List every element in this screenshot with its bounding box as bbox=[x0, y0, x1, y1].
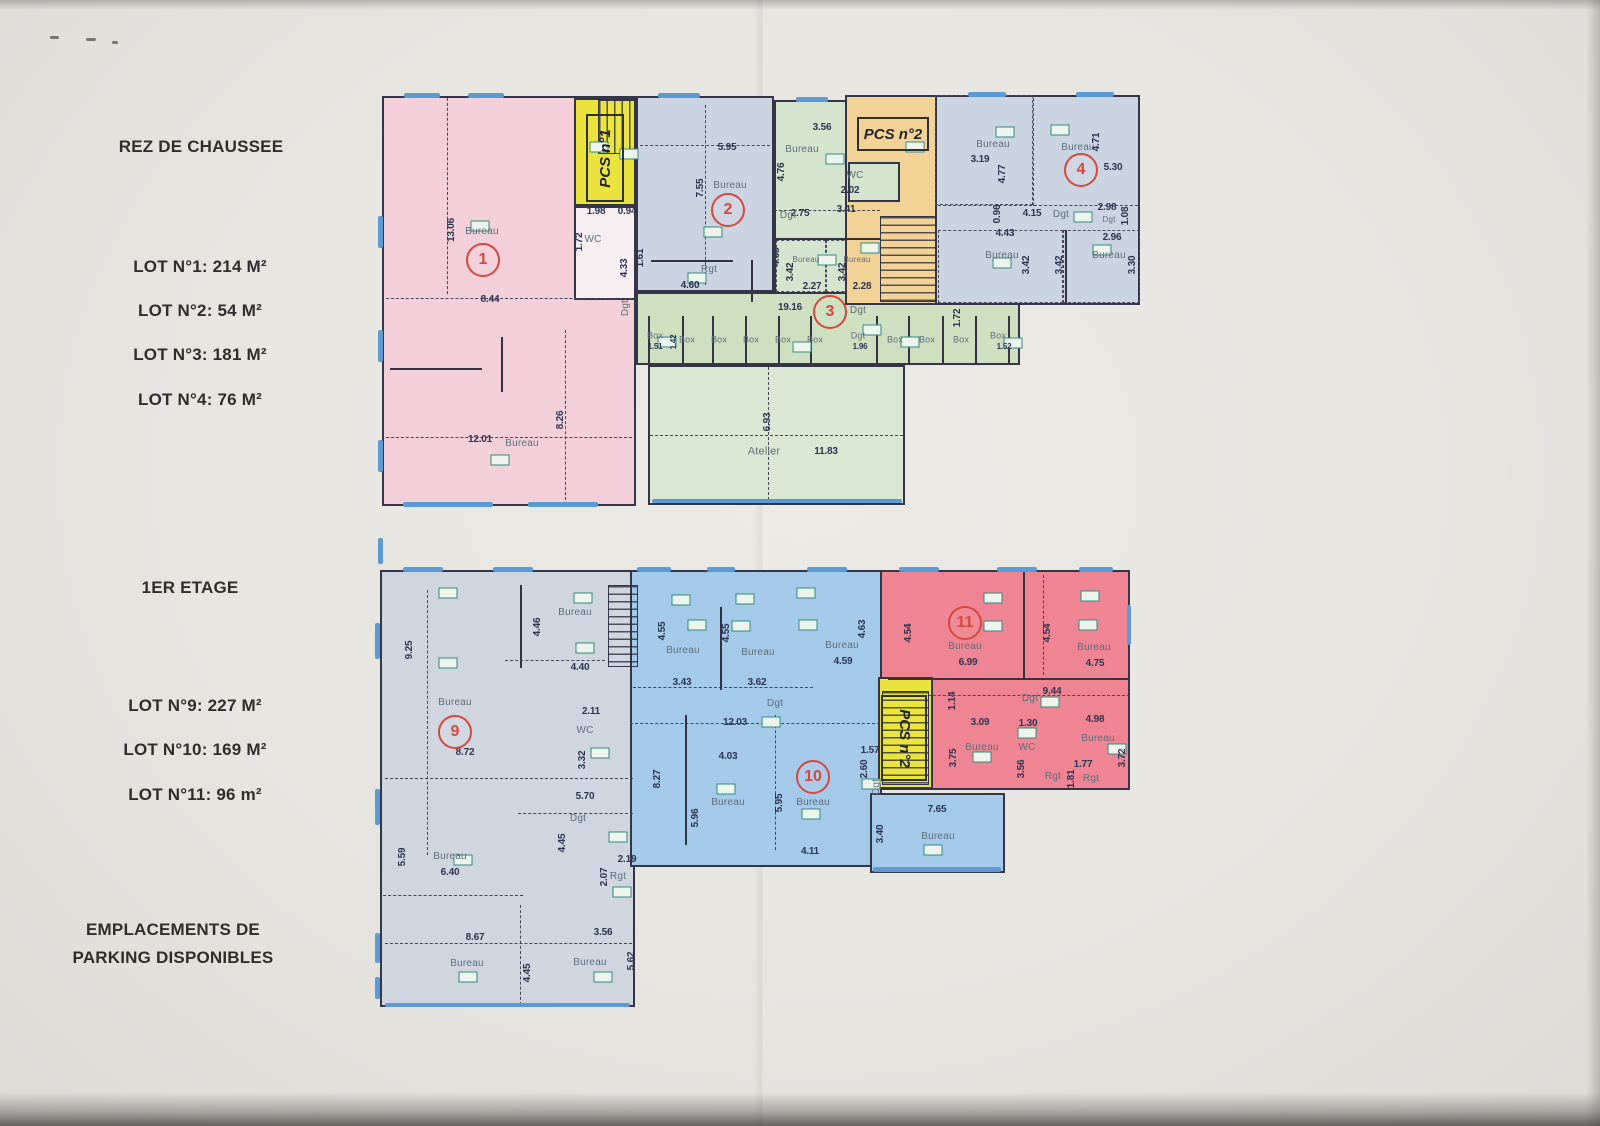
window-mark bbox=[404, 93, 440, 98]
lot-number-circle: 4 bbox=[1064, 153, 1098, 187]
dimension-label: 6.93 bbox=[763, 413, 773, 432]
window-mark bbox=[378, 330, 383, 362]
room-label: Bureau bbox=[713, 181, 746, 191]
room-label: Bureau bbox=[985, 251, 1018, 261]
window-mark bbox=[658, 93, 700, 98]
room-tag-badge bbox=[704, 227, 723, 238]
staircase bbox=[880, 216, 937, 302]
dimension-label: 1.72 bbox=[953, 309, 963, 328]
room-tag-badge bbox=[984, 621, 1003, 632]
dimension-label: 4.75 bbox=[1086, 659, 1105, 669]
lot10-area bbox=[630, 570, 882, 867]
dimension-label: 8.27 bbox=[653, 770, 663, 789]
room-tag-badge bbox=[736, 594, 755, 605]
wall-line bbox=[888, 678, 1130, 680]
first-floor-plan: PCS n°29.254.46Bureau4.40Bureau8.722.11W… bbox=[375, 565, 1130, 1012]
room-label: Rgt bbox=[610, 872, 626, 882]
wc-room bbox=[848, 162, 900, 202]
dimension-label: 1.81 bbox=[1067, 770, 1077, 789]
partition-line bbox=[383, 895, 523, 896]
room-label: WC bbox=[846, 171, 863, 181]
lot-10-label: LOT N°10: 169 M² bbox=[65, 740, 325, 760]
room-label: Dgt bbox=[767, 699, 783, 709]
room-tag-badge bbox=[1079, 620, 1098, 631]
room-label: Dgt bbox=[1102, 216, 1115, 224]
room-label: Bureau bbox=[433, 852, 466, 862]
dimension-label: 12.03 bbox=[723, 718, 747, 728]
dimension-label: 4.15 bbox=[1023, 209, 1042, 219]
dimension-label: 3.75 bbox=[949, 749, 959, 768]
dimension-label: 2.98 bbox=[1098, 203, 1117, 213]
window-mark bbox=[378, 216, 383, 248]
room-tag-badge bbox=[1041, 697, 1060, 708]
dimension-label: 4.46 bbox=[533, 618, 543, 637]
window-mark bbox=[378, 538, 383, 564]
room-tag-badge bbox=[672, 595, 691, 606]
window-mark bbox=[403, 567, 443, 572]
room-tag-badge bbox=[818, 255, 837, 266]
dimension-label: 19.16 bbox=[778, 303, 802, 313]
room-label: Dgt bbox=[851, 332, 866, 341]
room-label: Dgt bbox=[1053, 210, 1069, 220]
dimension-label: 4.71 bbox=[1092, 133, 1102, 152]
room-label: Box bbox=[807, 336, 823, 345]
room-tag-badge bbox=[901, 337, 920, 348]
wall-line bbox=[751, 260, 753, 302]
room-label: Bureau bbox=[948, 642, 981, 652]
window-mark bbox=[375, 623, 380, 659]
partition-line bbox=[768, 367, 769, 505]
partition-line bbox=[386, 298, 632, 299]
room-label: Box bbox=[679, 336, 695, 345]
room-label: Box bbox=[775, 336, 791, 345]
lot-4-label: LOT N°4: 76 M² bbox=[70, 390, 330, 410]
wall-line bbox=[975, 316, 977, 363]
room-label: Dgt bbox=[1022, 694, 1038, 704]
room-label: Dgt bbox=[872, 779, 882, 795]
dimension-label: 5.95 bbox=[718, 143, 737, 153]
wall-line bbox=[720, 607, 722, 690]
window-mark bbox=[1079, 567, 1113, 572]
dimension-label: 4.33 bbox=[620, 259, 630, 278]
lot-number-circle: 10 bbox=[796, 760, 830, 794]
dimension-label: 3.30 bbox=[1128, 256, 1138, 275]
room-tag-badge bbox=[591, 748, 610, 759]
room-tag-badge bbox=[717, 784, 736, 795]
room-label: Bureau bbox=[825, 641, 858, 651]
wall-line bbox=[390, 368, 482, 370]
pen-mark bbox=[112, 41, 118, 44]
window-mark bbox=[899, 567, 939, 572]
stairwell-name-label: PCS n°1 bbox=[597, 129, 614, 188]
room-label: Bureau bbox=[465, 227, 498, 237]
room-label: Bureau bbox=[450, 959, 483, 969]
wall-line bbox=[774, 238, 880, 240]
stairwell-name-frame: PCS n°2 bbox=[881, 695, 927, 781]
room-label: Dgt bbox=[850, 306, 866, 316]
room-label: Bureau bbox=[505, 439, 538, 449]
dimension-label: 2.02 bbox=[841, 186, 860, 196]
dimension-label: 3.40 bbox=[876, 825, 886, 844]
parking-note-line2: PARKING DISPONIBLES bbox=[73, 948, 274, 967]
dimension-label: 3.56 bbox=[813, 123, 832, 133]
room-tag-badge bbox=[609, 832, 628, 843]
wall-line bbox=[685, 715, 687, 845]
dimension-label: 4.59 bbox=[834, 657, 853, 667]
dimension-label: 6.40 bbox=[441, 868, 460, 878]
room-label: Bureau bbox=[976, 140, 1009, 150]
room-tag-badge bbox=[1081, 591, 1100, 602]
dimension-label: 7.65 bbox=[928, 805, 947, 815]
dimension-label: 3.42 bbox=[1055, 256, 1065, 275]
room-tag-badge bbox=[799, 620, 818, 631]
room-label: Rgt bbox=[1083, 774, 1099, 784]
dimension-label: 9.44 bbox=[1043, 687, 1062, 697]
room-tag-badge bbox=[1018, 728, 1037, 739]
window-mark bbox=[385, 1003, 630, 1007]
dimension-label: 4.54 bbox=[1043, 624, 1053, 643]
partition-line bbox=[385, 778, 633, 779]
room-label: WC bbox=[576, 726, 593, 736]
ground-floor-plan: PCS n°1PCS n°213.06Bureau8.4412.01Bureau… bbox=[378, 90, 1140, 514]
window-mark bbox=[1076, 92, 1114, 97]
lot-1-label: LOT N°1: 214 M² bbox=[70, 257, 330, 277]
dimension-label: 3.32 bbox=[578, 751, 588, 770]
dimension-label: 3.42 bbox=[786, 263, 796, 282]
room-tag-badge bbox=[762, 717, 781, 728]
dimension-label: 4.55 bbox=[658, 622, 668, 641]
dimension-label: 4.43 bbox=[996, 229, 1015, 239]
dimension-label: 4.60 bbox=[681, 281, 700, 291]
staircase bbox=[608, 585, 638, 667]
stairwell-name-label: PCS n°2 bbox=[896, 709, 913, 768]
window-mark bbox=[652, 499, 902, 503]
dimension-label: 4.40 bbox=[571, 663, 590, 673]
dimension-label: 1.57 bbox=[861, 746, 880, 756]
stairwell-name-frame: PCS n°1 bbox=[586, 114, 624, 202]
window-mark bbox=[378, 440, 383, 472]
parking-note-line1: EMPLACEMENTS DE bbox=[86, 920, 260, 939]
dimension-label: 3.42 bbox=[1022, 256, 1032, 275]
window-mark bbox=[968, 92, 1006, 97]
partition-line bbox=[633, 687, 813, 688]
room-label: Dgt bbox=[621, 300, 631, 316]
window-mark bbox=[873, 867, 1001, 872]
partition-line bbox=[427, 590, 428, 855]
dimension-label: 4.03 bbox=[719, 752, 738, 762]
dimension-label: 1.98 bbox=[587, 207, 606, 217]
window-mark bbox=[528, 502, 598, 507]
dimension-label: 4.76 bbox=[777, 163, 787, 182]
wall-line bbox=[876, 316, 878, 363]
dimension-label: 5.30 bbox=[1104, 163, 1123, 173]
room-tag-badge bbox=[439, 658, 458, 669]
dimension-label: 2.27 bbox=[803, 282, 822, 292]
partition-line bbox=[640, 145, 770, 146]
dimension-label: 4.45 bbox=[558, 834, 568, 853]
dimension-label: 0.96 bbox=[993, 205, 1003, 224]
dimension-label: 3.42 bbox=[838, 263, 848, 282]
partition-line bbox=[1033, 98, 1034, 206]
window-mark bbox=[375, 789, 380, 825]
room-tag-badge bbox=[973, 752, 992, 763]
scanned-floorplan-sheet: { "legend": { "rdc_title": "REZ DE CHAUS… bbox=[0, 0, 1600, 1126]
dimension-label: 2.60 bbox=[860, 760, 870, 779]
dimension-label: 4.11 bbox=[801, 847, 819, 857]
room-tag-badge bbox=[576, 643, 595, 654]
dimension-label: 4.45 bbox=[523, 964, 533, 983]
window-mark bbox=[707, 567, 735, 572]
room-label: Bureau bbox=[1092, 251, 1125, 261]
wall-line bbox=[942, 316, 944, 363]
room-label: Box bbox=[743, 336, 759, 345]
dimension-label: 3.19 bbox=[971, 155, 990, 165]
room-label: Box bbox=[953, 336, 969, 345]
paper-edge-bottom bbox=[0, 1092, 1600, 1126]
lot-number-circle: 3 bbox=[813, 295, 847, 329]
room-tag-badge bbox=[802, 809, 821, 820]
first-floor-title: 1ER ETAGE bbox=[90, 578, 290, 598]
room-label: Rgt bbox=[1045, 772, 1061, 782]
lot4-room-divider bbox=[935, 95, 1033, 205]
dimension-label: 11.83 bbox=[814, 447, 837, 457]
dimension-label: 8.44 bbox=[481, 295, 500, 305]
room-tag-badge bbox=[491, 455, 510, 466]
dimension-label: 3.41 bbox=[837, 205, 856, 215]
dimension-label: 1.30 bbox=[1019, 719, 1038, 729]
room-tag-badge bbox=[688, 620, 707, 631]
dimension-label: 5.59 bbox=[398, 848, 408, 867]
pen-mark bbox=[50, 36, 59, 39]
partition-line bbox=[385, 943, 632, 944]
lot-number-circle: 9 bbox=[438, 715, 472, 749]
dimension-label: 5.95 bbox=[775, 794, 785, 813]
wall-line bbox=[520, 585, 522, 668]
wall-line bbox=[1065, 230, 1067, 303]
dimension-label: 2.96 bbox=[1103, 233, 1122, 243]
dimension-label: 3.62 bbox=[748, 678, 767, 688]
window-mark bbox=[403, 502, 493, 507]
window-mark bbox=[997, 567, 1037, 572]
lot-2-label: LOT N°2: 54 M² bbox=[70, 301, 330, 321]
room-label: Bureau bbox=[1081, 734, 1114, 744]
partition-line bbox=[505, 660, 605, 661]
ground-floor-title: REZ DE CHAUSSEE bbox=[96, 137, 306, 157]
lot-number-circle: 2 bbox=[711, 193, 745, 227]
partition-line bbox=[630, 723, 880, 724]
dimension-label: 0.94 bbox=[618, 207, 637, 217]
room-tag-badge bbox=[574, 593, 593, 604]
window-mark bbox=[1127, 605, 1131, 645]
dimension-label: 3.56 bbox=[1017, 760, 1027, 779]
lot9-area bbox=[380, 570, 635, 1007]
dimension-label: 2.28 bbox=[853, 282, 872, 292]
room-label: WC bbox=[1018, 743, 1035, 753]
room-tag-badge bbox=[732, 621, 751, 632]
window-mark bbox=[637, 567, 671, 572]
dimension-label: 4.98 bbox=[1086, 715, 1105, 725]
room-label: Atelier bbox=[748, 447, 781, 458]
room-label: Dgt bbox=[570, 814, 586, 824]
dimension-label: 8.26 bbox=[556, 411, 566, 430]
room-tag-badge bbox=[1074, 212, 1093, 223]
room-tag-badge bbox=[613, 887, 632, 898]
dimension-label: 12.01 bbox=[468, 435, 492, 445]
room-label: Bureau bbox=[741, 648, 774, 658]
room-tag-badge bbox=[861, 243, 880, 254]
dimension-label: 1.61 bbox=[636, 249, 646, 268]
partition-line bbox=[650, 435, 903, 436]
stairwell-name-frame: PCS n°2 bbox=[857, 117, 929, 151]
room-label: Bureau bbox=[921, 832, 954, 842]
window-mark bbox=[468, 93, 504, 98]
window-mark bbox=[375, 977, 380, 999]
lot-number-circle: 11 bbox=[948, 606, 982, 640]
dimension-label: 2.11 bbox=[582, 707, 600, 717]
room-label: Bureau bbox=[1077, 643, 1110, 653]
window-mark bbox=[493, 567, 533, 572]
room-label: Box bbox=[887, 336, 903, 345]
lot-number-circle: 1 bbox=[466, 243, 500, 277]
room-label: Bureau bbox=[438, 698, 471, 708]
room-label: WC bbox=[584, 235, 601, 245]
pen-mark bbox=[86, 38, 96, 41]
dimension-label: 4.55 bbox=[722, 624, 732, 643]
dimension-label: 5.96 bbox=[691, 809, 701, 828]
lot-11-label: LOT N°11: 96 m² bbox=[65, 785, 325, 805]
room-label: Box bbox=[990, 332, 1006, 341]
partition-line bbox=[447, 98, 448, 294]
dimension-label: 4.63 bbox=[858, 620, 868, 639]
room-label: Box bbox=[919, 336, 935, 345]
lot-9-label: LOT N°9: 227 M² bbox=[65, 696, 325, 716]
room-label: Bureau bbox=[558, 608, 591, 618]
partition-line bbox=[775, 715, 776, 850]
dimension-label: 5.70 bbox=[576, 792, 595, 802]
dimension-label: 8.67 bbox=[466, 933, 485, 943]
room-tag-badge bbox=[439, 588, 458, 599]
window-mark bbox=[375, 933, 380, 963]
room-label: Box bbox=[711, 336, 727, 345]
dimension-label: 4.54 bbox=[904, 624, 914, 643]
room-label: Bureau bbox=[965, 743, 998, 753]
dimension-label: 2.19 bbox=[618, 855, 637, 865]
wall-line bbox=[651, 260, 733, 262]
window-mark bbox=[796, 97, 828, 102]
room-label: Bureau bbox=[785, 145, 818, 155]
paper-edge-right bbox=[1586, 0, 1600, 1126]
room-label: Rgt bbox=[701, 265, 717, 275]
room-label: Bureau bbox=[666, 646, 699, 656]
wall-line bbox=[501, 337, 503, 392]
wc-strip bbox=[574, 206, 636, 300]
dimension-label: 3.72 bbox=[1118, 749, 1128, 768]
dimension-label: 9.25 bbox=[405, 641, 415, 660]
dimension-label: 1.52 bbox=[997, 343, 1012, 351]
room-tag-badge bbox=[984, 593, 1003, 604]
room-label: Bureau bbox=[573, 958, 606, 968]
dimension-label: 1.51 bbox=[648, 343, 663, 351]
dimension-label: 8.72 bbox=[456, 748, 475, 758]
wall-line bbox=[1023, 570, 1025, 678]
room-label: Box bbox=[647, 332, 663, 341]
room-label: Bureau bbox=[796, 798, 829, 808]
dimension-label: 5.62 bbox=[627, 952, 637, 971]
dimension-label: 6.99 bbox=[959, 658, 978, 668]
room-label: Bureau bbox=[711, 798, 744, 808]
dimension-label: 1.42 bbox=[670, 335, 678, 350]
dimension-label: 13.06 bbox=[447, 218, 457, 242]
dimension-label: 1.08 bbox=[1121, 207, 1131, 226]
room-label: Dgt bbox=[780, 211, 796, 221]
dimension-label: 2.07 bbox=[600, 868, 610, 887]
room-tag-badge bbox=[459, 972, 478, 983]
room-tag-badge bbox=[594, 972, 613, 983]
dimension-label: 3.09 bbox=[971, 718, 990, 728]
dimension-label: 3.43 bbox=[673, 678, 692, 688]
room-tag-badge bbox=[797, 588, 816, 599]
room-label: Bureau bbox=[1061, 143, 1094, 153]
room-tag-badge bbox=[924, 845, 943, 856]
dimension-label: 4.63 bbox=[772, 248, 782, 267]
room-tag-badge bbox=[1051, 125, 1070, 136]
lot-3-label: LOT N°3: 181 M² bbox=[70, 345, 330, 365]
dimension-label: 1.96 bbox=[853, 343, 868, 351]
dimension-label: 3.56 bbox=[594, 928, 613, 938]
partition-line bbox=[520, 905, 521, 1005]
stairwell-name-label: PCS n°2 bbox=[864, 126, 923, 143]
parking-note: EMPLACEMENTS DE PARKING DISPONIBLES bbox=[53, 916, 293, 972]
dimension-label: 1.14 bbox=[948, 692, 958, 711]
dimension-label: 4.77 bbox=[998, 165, 1008, 184]
dimension-label: 7.55 bbox=[696, 179, 706, 198]
window-mark bbox=[807, 567, 847, 572]
room-label: Bureau bbox=[793, 256, 820, 264]
paper-edge-top bbox=[0, 0, 1600, 10]
room-tag-badge bbox=[996, 127, 1015, 138]
room-tag-badge bbox=[826, 154, 845, 165]
